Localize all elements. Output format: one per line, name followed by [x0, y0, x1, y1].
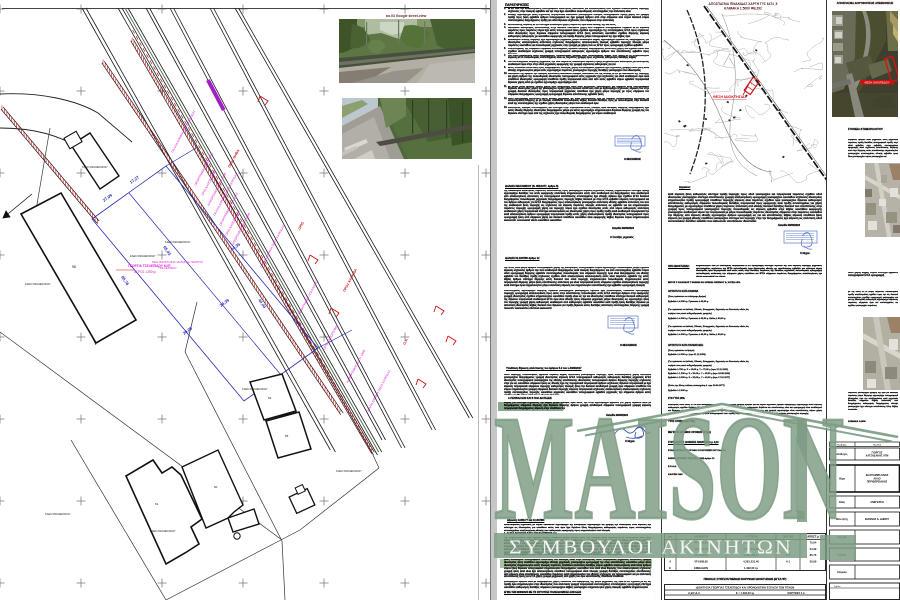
svg-text:Χ-ΚΑΘΕΤΜ: Χ-ΚΑΘΕΤΜ — [694, 535, 708, 539]
svg-text:α/α: α/α — [668, 535, 672, 539]
svg-text:ΚΑΕΚ 06044ΕΚ00047: ΚΑΕΚ 06044ΕΚ00047 — [130, 254, 156, 258]
svg-text:2-3: 2-3 — [786, 547, 790, 551]
svg-text:4-1: 4-1 — [786, 560, 790, 564]
svg-text:4.281.188,41: 4.281.188,41 — [743, 553, 759, 557]
svg-text:Ανάδοχος: Ανάδοχος — [836, 453, 848, 456]
svg-text:24,39: 24,39 — [810, 547, 817, 551]
svg-text:Ε = 1.392,00 τμ: Ε = 1.392,00 τμ — [736, 591, 755, 595]
svg-text:Κλίμακα: Κλίμακα — [837, 571, 847, 574]
svg-text:ΚΑΕΚ 06044ΕΚ00047: ΚΑΕΚ 06044ΕΚ00047 — [150, 529, 176, 533]
svg-text:98: 98 — [72, 265, 76, 269]
svg-text:ΑΠΟΣΤ μ: ΑΠΟΣΤ μ — [807, 535, 819, 539]
svg-text:ΑΠΟΣΠΑΣΜΑ ΠΙΝΑΚΙΔΑΣ ΧΑΡΤΗ ΓΥΣ: ΑΠΟΣΠΑΣΜΑ ΠΙΝΑΚΙΔΑΣ ΧΑΡΤΗ ΓΥΣ 6474_8 — [709, 2, 778, 6]
svg-text:1.392,00 τμ: 1.392,00 τμ — [744, 566, 758, 570]
svg-text:474.843,05: 474.843,05 — [694, 540, 708, 544]
svg-text:εικ.03 Google street-view: εικ.03 Google street-view — [386, 14, 427, 18]
svg-text:65: 65 — [285, 434, 289, 438]
svg-text:ΙΔΙΟΚΤΗΣΙΑ ΓΕΩΡΓΙΑΣ ΤΣΕΛΕΠΙΔΟΥ: ΙΔΙΟΚΤΗΣΙΑ ΓΕΩΡΓΙΑΣ ΤΣΕΛΕΠΙΔΟΥ ΚΑΙ ΧΡΟΝΟ… — [696, 586, 795, 590]
svg-text:ΤΔ-2023: ΤΔ-2023 — [873, 443, 882, 446]
svg-text:20,09: 20,09 — [810, 560, 817, 564]
svg-text:ΚΛΙΜΑΚΑ 1:5000 ΦΒ.292: ΚΛΙΜΑΚΑ 1:5000 ΦΒ.292 — [724, 7, 762, 11]
svg-text:ΑΓΡΟΣ 1392τμ: ΑΓΡΟΣ 1392τμ — [134, 270, 156, 274]
svg-text:4.281.243,05: 4.281.243,05 — [743, 540, 759, 544]
svg-text:75,04: 75,04 — [810, 540, 817, 544]
svg-text:ΚΑΕΚ 06044ΕΚ00047: ΚΑΕΚ 06044ΕΚ00047 — [242, 387, 268, 391]
svg-text:Μελετητής: Μελετητής — [836, 518, 849, 521]
svg-text:ΘΕΣΗ ΙΔΙΟΚΤΗΣΙΑΣ: ΘΕΣΗ ΙΔΙΟΚΤΗΣΙΑΣ — [713, 95, 747, 99]
svg-text:ΘΕΣΗ ΟΙΚΟΠΕΔΟΥ: ΘΕΣΗ ΟΙΚΟΠΕΔΟΥ — [864, 81, 889, 85]
svg-text:ΚΑΕΚ 06044ΕΚ00047: ΚΑΕΚ 06044ΕΚ00047 — [82, 165, 108, 169]
svg-text:3-4: 3-4 — [786, 553, 790, 557]
svg-text:Θέση: Θέση — [839, 501, 846, 504]
svg-text:1-2: 1-2 — [786, 540, 790, 544]
svg-text:ΚΑΕΚ 06044ΕΚ00047: ΚΑΕΚ 06044ΕΚ00047 — [45, 512, 71, 516]
svg-text:63: 63 — [268, 396, 272, 400]
svg-text:60: 60 — [214, 485, 218, 489]
svg-text:Ε: Ε — [669, 566, 671, 570]
svg-text:61: 61 — [155, 502, 159, 506]
svg-text:ΑΝΕΓΕΡΣΗ: ΑΝΕΓΕΡΣΗ — [870, 501, 884, 504]
svg-text:ΤΣΕΛΕΠΙΔΟΥ: ΤΣΕΛΕΠΙΔΟΥ — [158, 266, 177, 270]
svg-text:ΙΩΑΝΝΗΣ Δ. ΔΗΜΟΥ: ΙΩΑΝΝΗΣ Δ. ΔΗΜΟΥ — [865, 518, 890, 521]
svg-text:Σχέδιο: Σχέδιο — [834, 585, 841, 588]
svg-text:85,76: 85,76 — [810, 553, 817, 557]
svg-text:4.281.231,40: 4.281.231,40 — [743, 560, 759, 564]
svg-text:Ημερομ.: Ημερομ. — [837, 554, 847, 557]
svg-text:ΚΑΕΚ 06044ΕΚ00047: ΚΑΕΚ 06044ΕΚ00047 — [336, 469, 362, 473]
svg-text:474.869,12: 474.869,12 — [694, 547, 708, 551]
svg-text:Θέμα: Θέμα — [839, 478, 845, 481]
svg-text:ΠΛΕΥΡΑ: ΠΛΕΥΡΑ — [783, 535, 794, 539]
svg-text:ΕΜΒΑΔΟΝ: ΕΜΒΑΔΟΝ — [694, 566, 708, 570]
svg-text:Ελέγχθη: Ελέγχθη — [837, 536, 847, 539]
svg-text:Α,Β,Γ,Δ,Α: Α,Β,Γ,Δ,Α — [688, 591, 700, 595]
svg-text:ΠΕΡΙΦΕΡΕΙΑΚΗΣ: ΠΕΡΙΦΕΡΕΙΑΚΗΣ — [867, 481, 888, 484]
svg-text:ΝΕΑ ΙΔΙΟΚΤΗΣΙΑ 1128,83τμ ΓΕΩΡΓ: ΝΕΑ ΙΔΙΟΚΤΗΣΙΑ 1128,83τμ ΓΕΩΡΓΙΑ — [152, 260, 203, 264]
svg-text:ΧΑΤΖΗΔΑΚΗΣ ΑΤΜ: ΧΑΤΖΗΔΑΚΗΣ ΑΤΜ — [866, 455, 889, 458]
svg-text:ΚΑΕΚ 06044ΕΚ00047: ΚΑΕΚ 06044ΕΚ00047 — [25, 282, 51, 286]
svg-text:Κωδικός: Κωδικός — [838, 443, 848, 446]
svg-text:4.281.201,88: 4.281.201,88 — [743, 547, 759, 551]
svg-text:474.808,65: 474.808,65 — [694, 560, 708, 564]
svg-text:ΚΑΕΚ 06044ΕΚ00047: ΚΑΕΚ 06044ΕΚ00047 — [165, 240, 191, 244]
svg-text:ΚΟΡΥΦΕΣ 4 α: ΚΟΡΥΦΕΣ 4 α — [787, 591, 804, 595]
svg-text:474.848,26: 474.848,26 — [694, 553, 708, 557]
svg-text:Υ-ΤΕΤΑΓΜ: Υ-ΤΕΤΑΓΜ — [745, 535, 758, 539]
